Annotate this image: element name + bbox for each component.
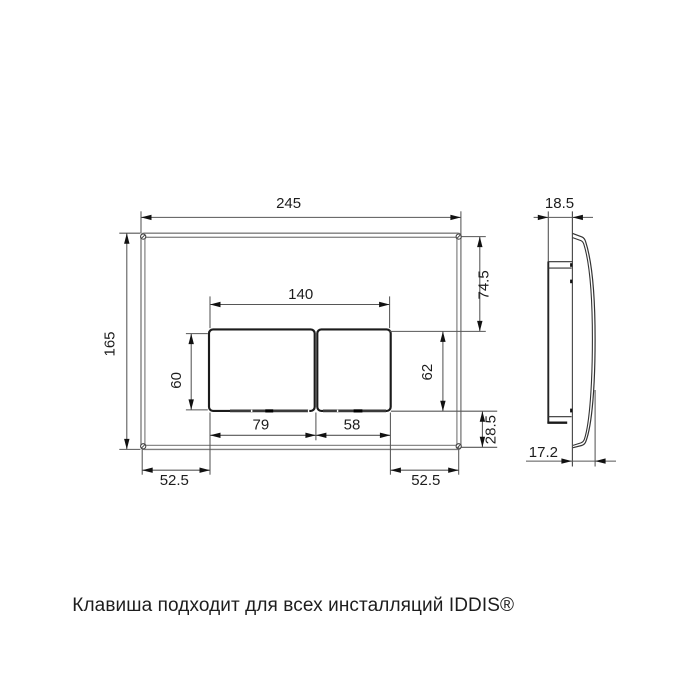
svg-text:18.5: 18.5 (545, 195, 574, 212)
svg-text:245: 245 (276, 195, 301, 212)
svg-text:79: 79 (253, 417, 270, 434)
svg-text:52.5: 52.5 (160, 472, 189, 489)
svg-text:Клавиша подходит для всех инст: Клавиша подходит для всех инсталляций ID… (72, 595, 514, 616)
svg-text:74.5: 74.5 (475, 270, 492, 299)
svg-text:28.5: 28.5 (482, 415, 499, 444)
svg-text:62: 62 (419, 364, 436, 381)
svg-text:52.5: 52.5 (411, 472, 440, 489)
svg-text:58: 58 (344, 417, 361, 434)
svg-text:165: 165 (102, 331, 119, 356)
svg-text:17.2: 17.2 (529, 444, 558, 461)
svg-text:60: 60 (168, 372, 185, 389)
svg-text:140: 140 (288, 286, 313, 303)
